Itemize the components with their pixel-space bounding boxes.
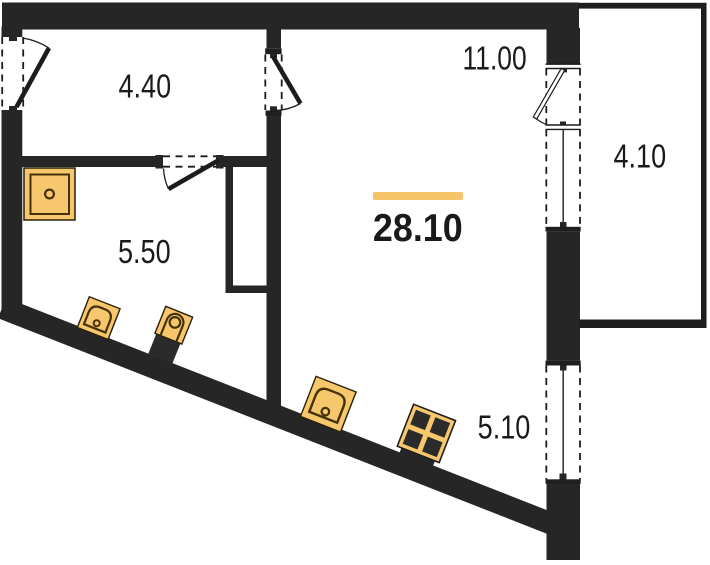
- svg-text:11.00: 11.00: [463, 41, 527, 77]
- svg-text:5.50: 5.50: [118, 234, 171, 270]
- svg-text:5.10: 5.10: [478, 410, 531, 446]
- svg-text:28.10: 28.10: [373, 206, 463, 250]
- svg-text:4.40: 4.40: [118, 69, 171, 105]
- svg-text:4.10: 4.10: [613, 139, 666, 175]
